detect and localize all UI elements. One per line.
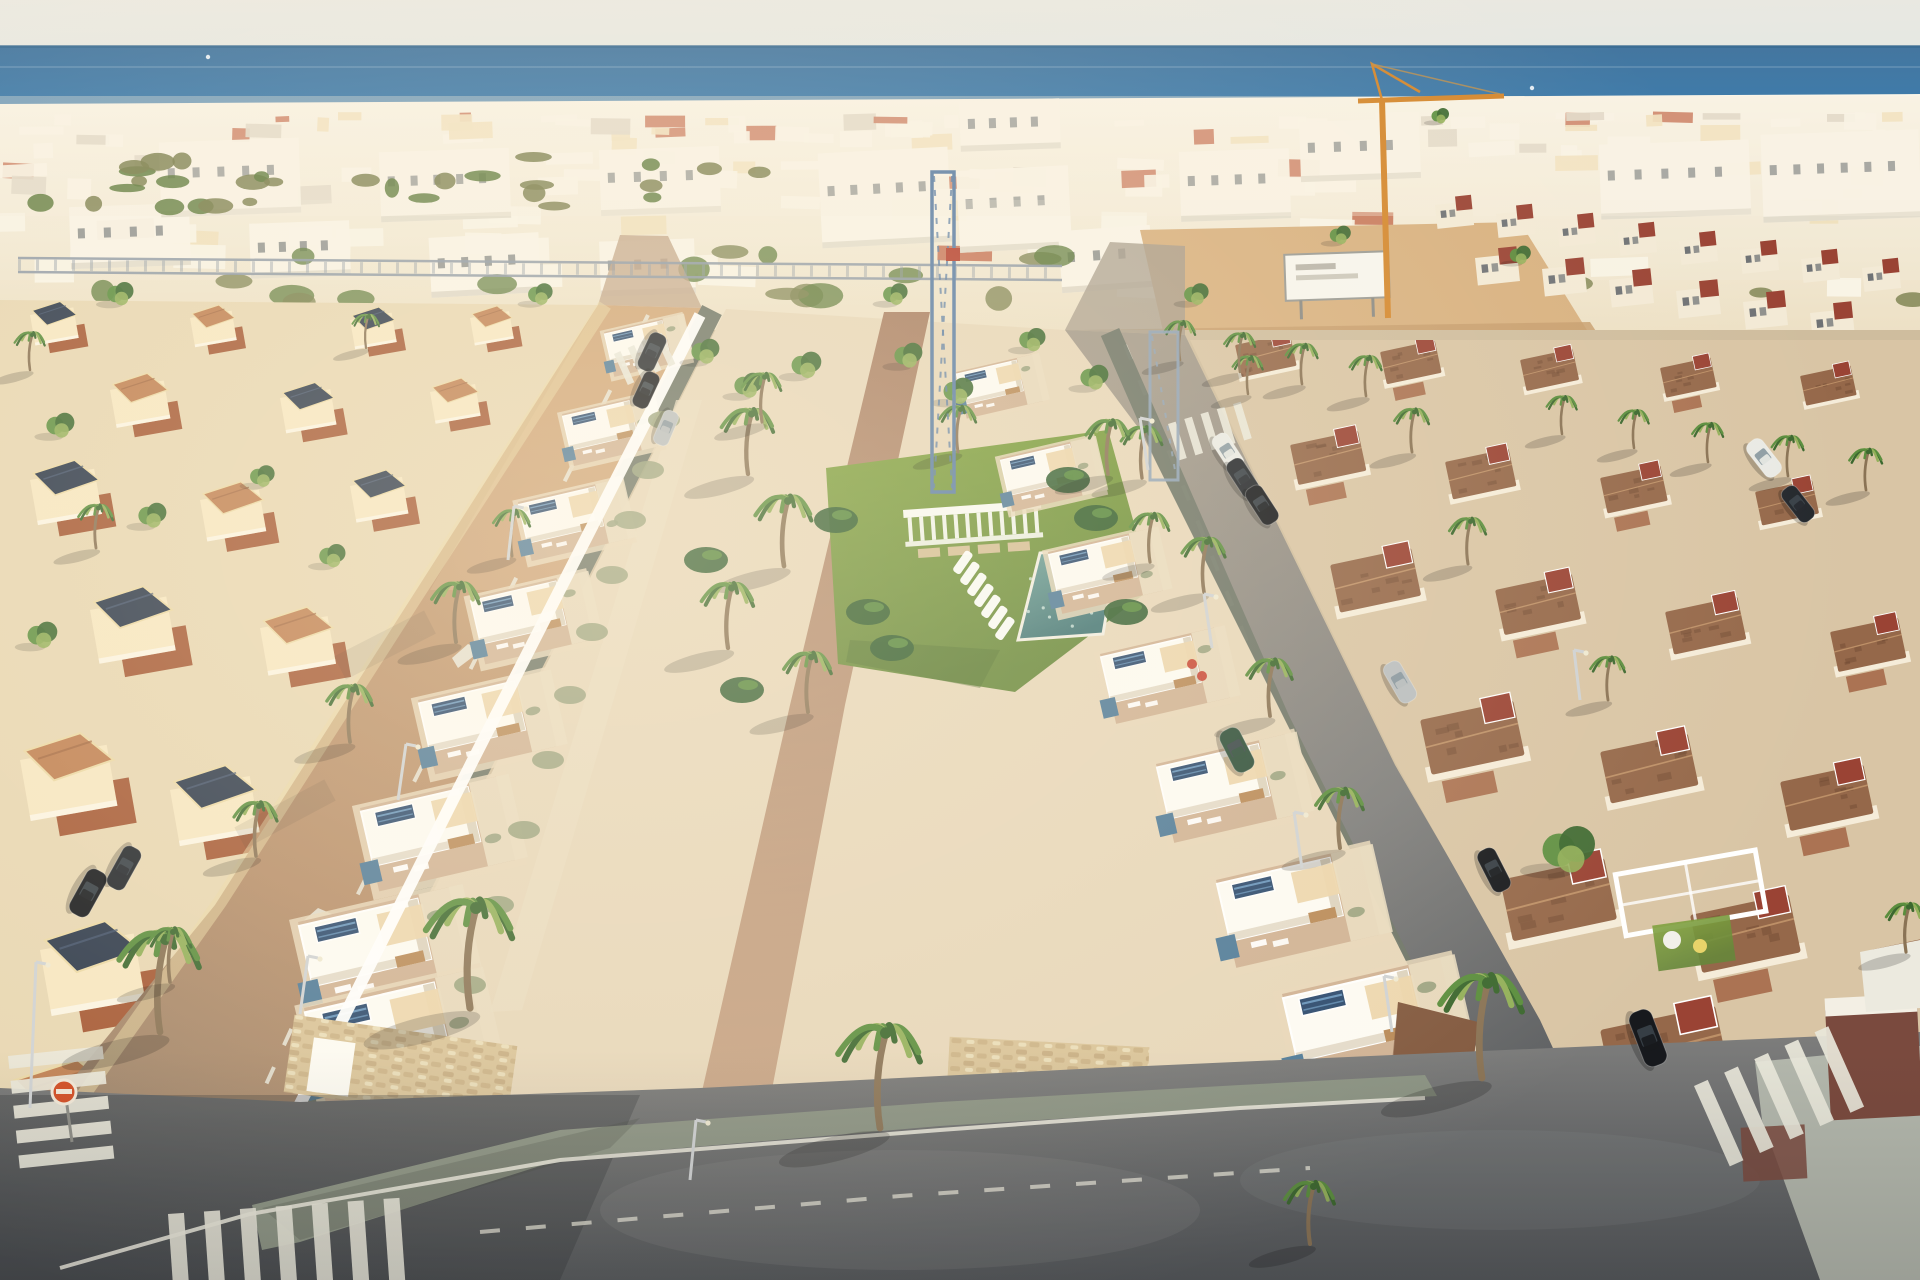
aerial-render-coastal-development [0,0,1920,1280]
scene-canvas [0,0,1920,1280]
vignette-overlay [0,0,1920,1280]
